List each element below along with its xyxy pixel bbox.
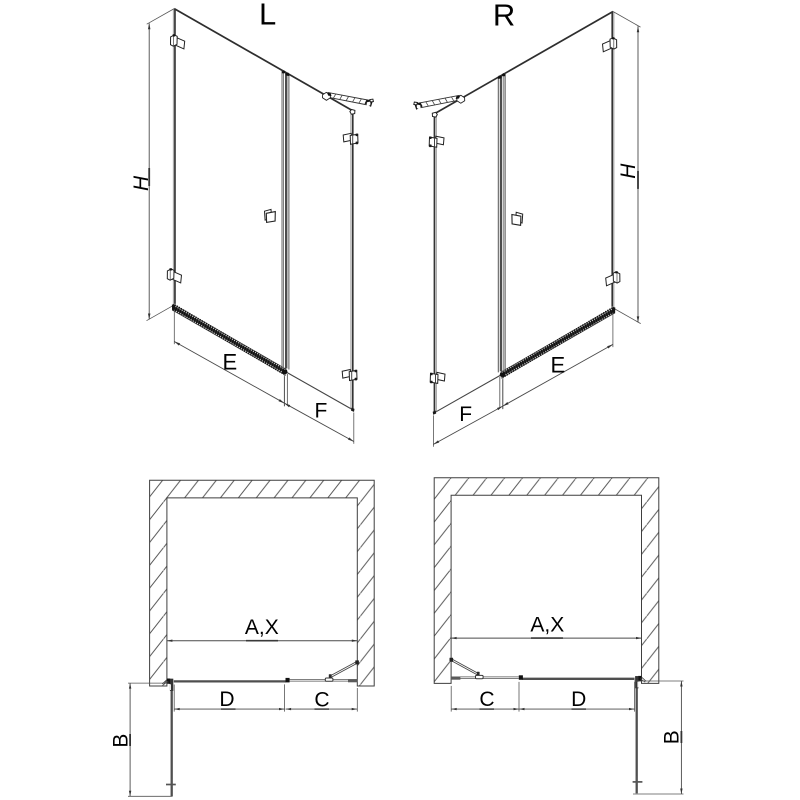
svg-text:C: C	[314, 688, 329, 711]
svg-text:E: E	[551, 353, 566, 378]
svg-text:L: L	[259, 0, 276, 31]
svg-text:C: C	[479, 688, 494, 711]
svg-text:B: B	[660, 730, 683, 744]
svg-text:R: R	[493, 0, 515, 33]
svg-text:A,X: A,X	[245, 616, 279, 639]
svg-text:F: F	[314, 399, 327, 422]
svg-text:D: D	[571, 688, 586, 711]
svg-text:D: D	[219, 688, 234, 711]
svg-text:B: B	[110, 734, 133, 748]
svg-text:H: H	[617, 163, 640, 179]
svg-text:A,X: A,X	[530, 613, 564, 636]
svg-text:F: F	[459, 403, 472, 426]
svg-text:H: H	[130, 175, 153, 191]
svg-text:E: E	[222, 349, 237, 374]
